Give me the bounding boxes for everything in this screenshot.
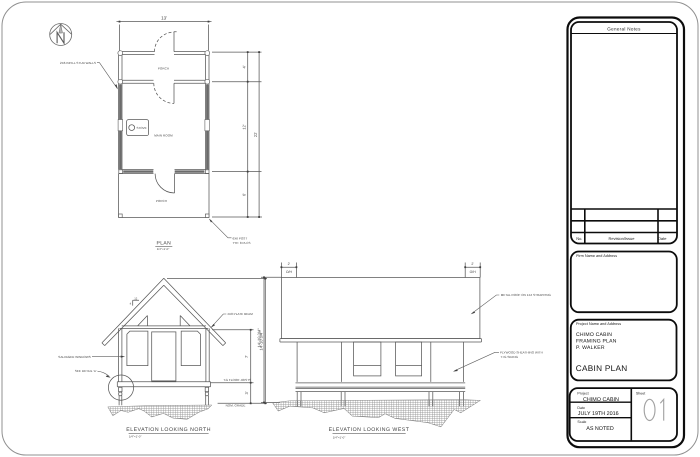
svg-text:FRAMING PLAN: FRAMING PLAN <box>576 339 617 345</box>
svg-text:PLYWOOD SHEATHING WITH: PLYWOOD SHEATHING WITH <box>500 350 543 354</box>
svg-text:2': 2' <box>471 262 474 266</box>
svg-text:2': 2' <box>288 262 291 266</box>
svg-text:CHIMO CABIN: CHIMO CABIN <box>583 397 619 403</box>
svg-text:13': 13' <box>161 16 167 21</box>
svg-text:ELEVATION LOOKING NORTH: ELEVATION LOOKING NORTH <box>126 427 211 433</box>
svg-text:12': 12' <box>241 124 246 129</box>
svg-text:No.: No. <box>576 236 582 241</box>
svg-text:P. WALKER: P. WALKER <box>576 345 605 351</box>
svg-text:22': 22' <box>253 132 258 137</box>
svg-text:PLAN: PLAN <box>156 240 171 246</box>
svg-text:PORCH: PORCH <box>156 199 167 203</box>
svg-text:14'-10 3/4": 14'-10 3/4" <box>257 328 262 348</box>
svg-text:CHIMO CABIN: CHIMO CABIN <box>576 332 612 338</box>
svg-text:NOM. GRADE: NOM. GRADE <box>226 403 246 407</box>
svg-text:Date: Date <box>577 406 585 410</box>
svg-text:SALVAGED WINDOWS: SALVAGED WINDOWS <box>58 355 91 359</box>
svg-text:Firm Name and Address: Firm Name and Address <box>576 254 617 258</box>
svg-text:3': 3' <box>244 391 249 394</box>
svg-text:T+G SIDING: T+G SIDING <box>500 355 518 359</box>
svg-text:4X8 PLATE BEAM: 4X8 PLATE BEAM <box>227 312 253 316</box>
svg-text:7': 7' <box>244 355 249 358</box>
svg-text:Scale: Scale <box>577 420 586 424</box>
svg-text:O/H: O/H <box>470 270 477 274</box>
svg-text:ELEVATION LOOKING WEST: ELEVATION LOOKING WEST <box>329 427 410 433</box>
svg-text:4': 4' <box>241 65 246 68</box>
svg-text:T.G FLOOR JOISTS: T.G FLOOR JOISTS <box>223 378 251 382</box>
svg-text:CABIN PLAN: CABIN PLAN <box>576 364 628 373</box>
svg-text:Revision/Issue: Revision/Issue <box>608 236 635 241</box>
svg-text:1/4"=1'-0": 1/4"=1'-0" <box>129 435 142 439</box>
svg-text:1/4"=1'-0": 1/4"=1'-0" <box>157 247 170 251</box>
svg-text:Project: Project <box>577 392 588 396</box>
svg-text:MAIN ROOM: MAIN ROOM <box>154 134 173 138</box>
svg-text:METAL ROOF ON 1X4 STRAPPING: METAL ROOF ON 1X4 STRAPPING <box>501 293 552 297</box>
svg-text:Date: Date <box>658 236 667 241</box>
svg-text:Sheet: Sheet <box>636 392 645 396</box>
svg-text:TYP. 8 PLCS: TYP. 8 PLCS <box>233 241 251 245</box>
svg-text:1/4"=1'-0": 1/4"=1'-0" <box>333 435 346 439</box>
svg-text:Project Name and Address: Project Name and Address <box>576 322 621 326</box>
svg-text:STOVE: STOVE <box>137 126 147 130</box>
svg-text:PORCH: PORCH <box>158 67 169 71</box>
svg-text:SEE DETAIL 'A': SEE DETAIL 'A' <box>75 369 97 373</box>
svg-text:2X6 INFILL STUD WALLS: 2X6 INFILL STUD WALLS <box>60 61 96 65</box>
svg-text:12: 12 <box>134 296 138 300</box>
svg-text:General Notes: General Notes <box>607 27 641 32</box>
svg-text:AS NOTED: AS NOTED <box>586 426 614 432</box>
svg-text:JULY 19TH 2016: JULY 19TH 2016 <box>578 411 619 417</box>
svg-text:6': 6' <box>241 193 246 196</box>
svg-text:O/H: O/H <box>286 270 293 274</box>
